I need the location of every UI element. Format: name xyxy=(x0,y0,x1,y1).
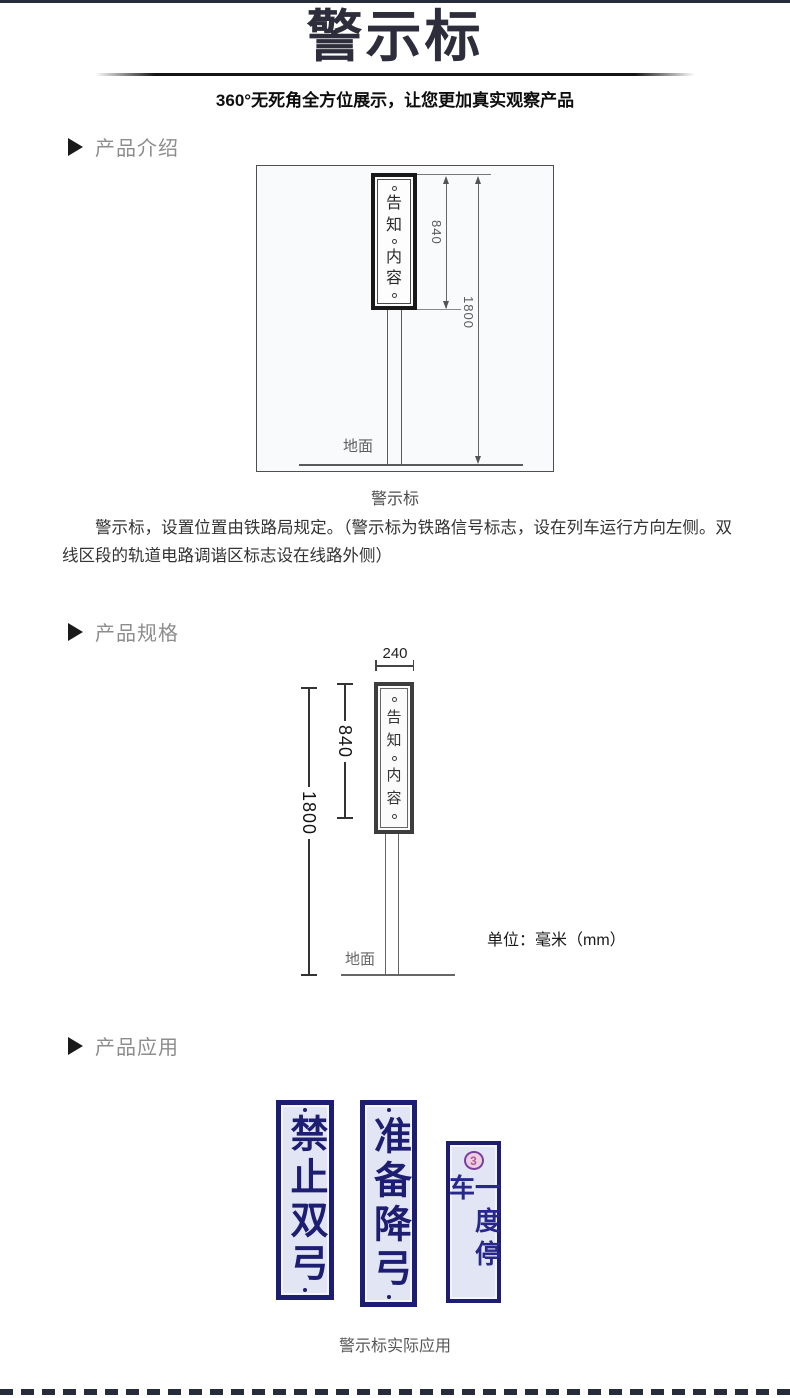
unit-note: 单位：毫米（mm） xyxy=(487,926,626,950)
mount-hole-icon xyxy=(387,1108,391,1112)
mount-hole-icon xyxy=(387,1295,391,1299)
sign-photo-yidu-tingche: 3 一度停车 xyxy=(446,1141,501,1303)
sign-text: 一度停车 xyxy=(448,1174,500,1299)
spec-diagram-image: 240 告 知 内 容 地面 840 1800 单位：毫米（mm） xyxy=(295,645,640,985)
dim-cap xyxy=(301,974,317,976)
sign-char: 告 xyxy=(386,196,402,212)
dim-label-240: 240 xyxy=(373,645,417,662)
mount-hole-icon xyxy=(392,293,397,298)
extension-line xyxy=(417,309,463,310)
page-subtitle: 360°无死角全方位展示，让您更加真实观察产品 xyxy=(0,86,790,111)
dim-label-840: 840 xyxy=(334,721,355,762)
diagram-sign-plate: 告 知 内 容 xyxy=(371,173,417,310)
ground-label: 地面 xyxy=(343,435,373,456)
sign-char: 容 xyxy=(386,791,401,806)
triangle-marker-icon xyxy=(68,1037,83,1055)
section-label: 产品规格 xyxy=(95,617,179,646)
diagram-post xyxy=(385,834,399,974)
sign-photo-jinzhi-shuanggong: 禁止双弓 xyxy=(276,1100,334,1300)
dim-cap xyxy=(337,817,353,819)
sign-char: 知 xyxy=(386,218,402,234)
section-header-intro: 产品介绍 xyxy=(68,132,179,161)
arrow-down-icon xyxy=(475,456,481,464)
diagram-sign-face: 告 知 内 容 xyxy=(380,688,408,828)
sign-char: 容 xyxy=(386,271,402,287)
dim-cap xyxy=(301,687,317,689)
extension-line xyxy=(415,174,491,175)
ground-line xyxy=(299,464,523,466)
mount-hole-icon xyxy=(392,756,397,761)
triangle-marker-icon xyxy=(68,138,83,156)
section-header-apps: 产品应用 xyxy=(68,1031,179,1060)
sign-char: 内 xyxy=(386,768,401,783)
diagram-post xyxy=(387,310,402,464)
dim-label-840: 840 xyxy=(429,218,444,247)
section-label: 产品应用 xyxy=(95,1031,179,1060)
dim-tick xyxy=(375,660,377,671)
dim-label-1800: 1800 xyxy=(461,294,476,331)
arrow-down-icon xyxy=(443,301,449,309)
sign-text: 准备降弓 xyxy=(370,1116,408,1292)
diagram-sign-face: 告 知 内 容 xyxy=(377,179,411,304)
mount-hole-icon xyxy=(392,697,397,702)
triangle-marker-icon xyxy=(68,623,83,641)
ground-label: 地面 xyxy=(345,948,375,969)
mount-hole-icon xyxy=(303,1108,307,1112)
sign-photo-zhunbei-jianggong: 准备降弓 xyxy=(360,1100,417,1307)
dimension-line-240 xyxy=(376,665,414,667)
diagram-sign-plate: 告 知 内 容 xyxy=(374,682,414,834)
section-label: 产品介绍 xyxy=(95,132,179,161)
section-header-specs: 产品规格 xyxy=(68,617,179,646)
bottom-dashed-bar xyxy=(0,1389,790,1395)
sign-text: 禁止双弓 xyxy=(286,1114,324,1286)
page-title: 警示标 xyxy=(0,2,790,72)
dimension-line-840 xyxy=(446,178,447,308)
railway-emblem-icon: 3 xyxy=(464,1151,484,1170)
diagram-caption: 警示标 xyxy=(0,485,790,509)
sign-char: 知 xyxy=(386,733,401,748)
arrow-up-icon xyxy=(475,176,481,184)
sign-char: 告 xyxy=(386,710,401,725)
dim-label-1800: 1800 xyxy=(298,787,319,839)
sign-char: 内 xyxy=(386,250,402,266)
title-underline xyxy=(95,73,695,76)
application-signs-row: 禁止双弓 准备降弓 3 一度停车 xyxy=(276,1100,501,1307)
mount-hole-icon xyxy=(392,814,397,819)
applications-caption: 警示标实际应用 xyxy=(0,1332,790,1356)
dim-tick xyxy=(413,660,415,671)
intro-paragraph: 警示标，设置位置由铁路局规定。（警示标为铁路信号标志，设在列车运行方向左侧。双线… xyxy=(62,514,732,570)
mount-hole-icon xyxy=(392,186,397,191)
dimension-line-1800 xyxy=(478,178,479,462)
intro-diagram-image: 告 知 内 容 地面 840 1800 xyxy=(256,165,554,472)
ground-line xyxy=(341,974,455,976)
dim-cap xyxy=(337,683,353,685)
arrow-up-icon xyxy=(443,176,449,184)
product-detail-page: 警示标 360°无死角全方位展示，让您更加真实观察产品 产品介绍 告 知 内 容… xyxy=(0,0,790,1398)
mount-hole-icon xyxy=(303,1288,307,1292)
mount-hole-icon xyxy=(392,239,397,244)
